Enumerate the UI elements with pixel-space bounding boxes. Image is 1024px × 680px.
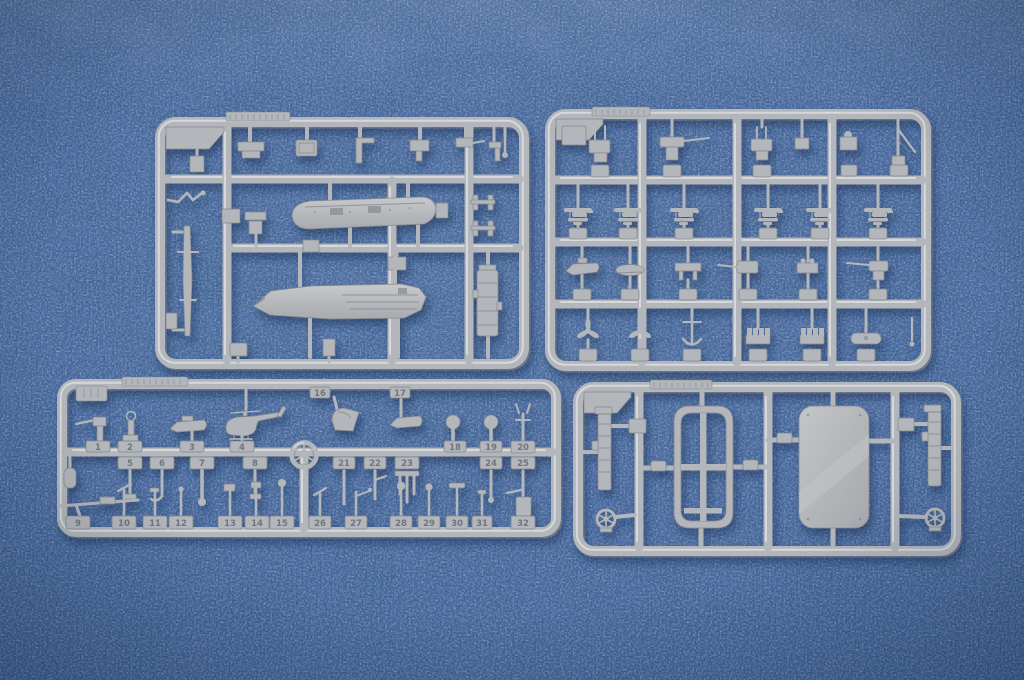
vignette-overlay: [0, 0, 1024, 680]
sprue-photo: 1 2 3 4 5 6 7 8 9 10 11 12 13 14 15 16 1…: [0, 0, 1024, 680]
photo-canvas: 1 2 3 4 5 6 7 8 9 10 11 12 13 14 15 16 1…: [0, 0, 1024, 680]
